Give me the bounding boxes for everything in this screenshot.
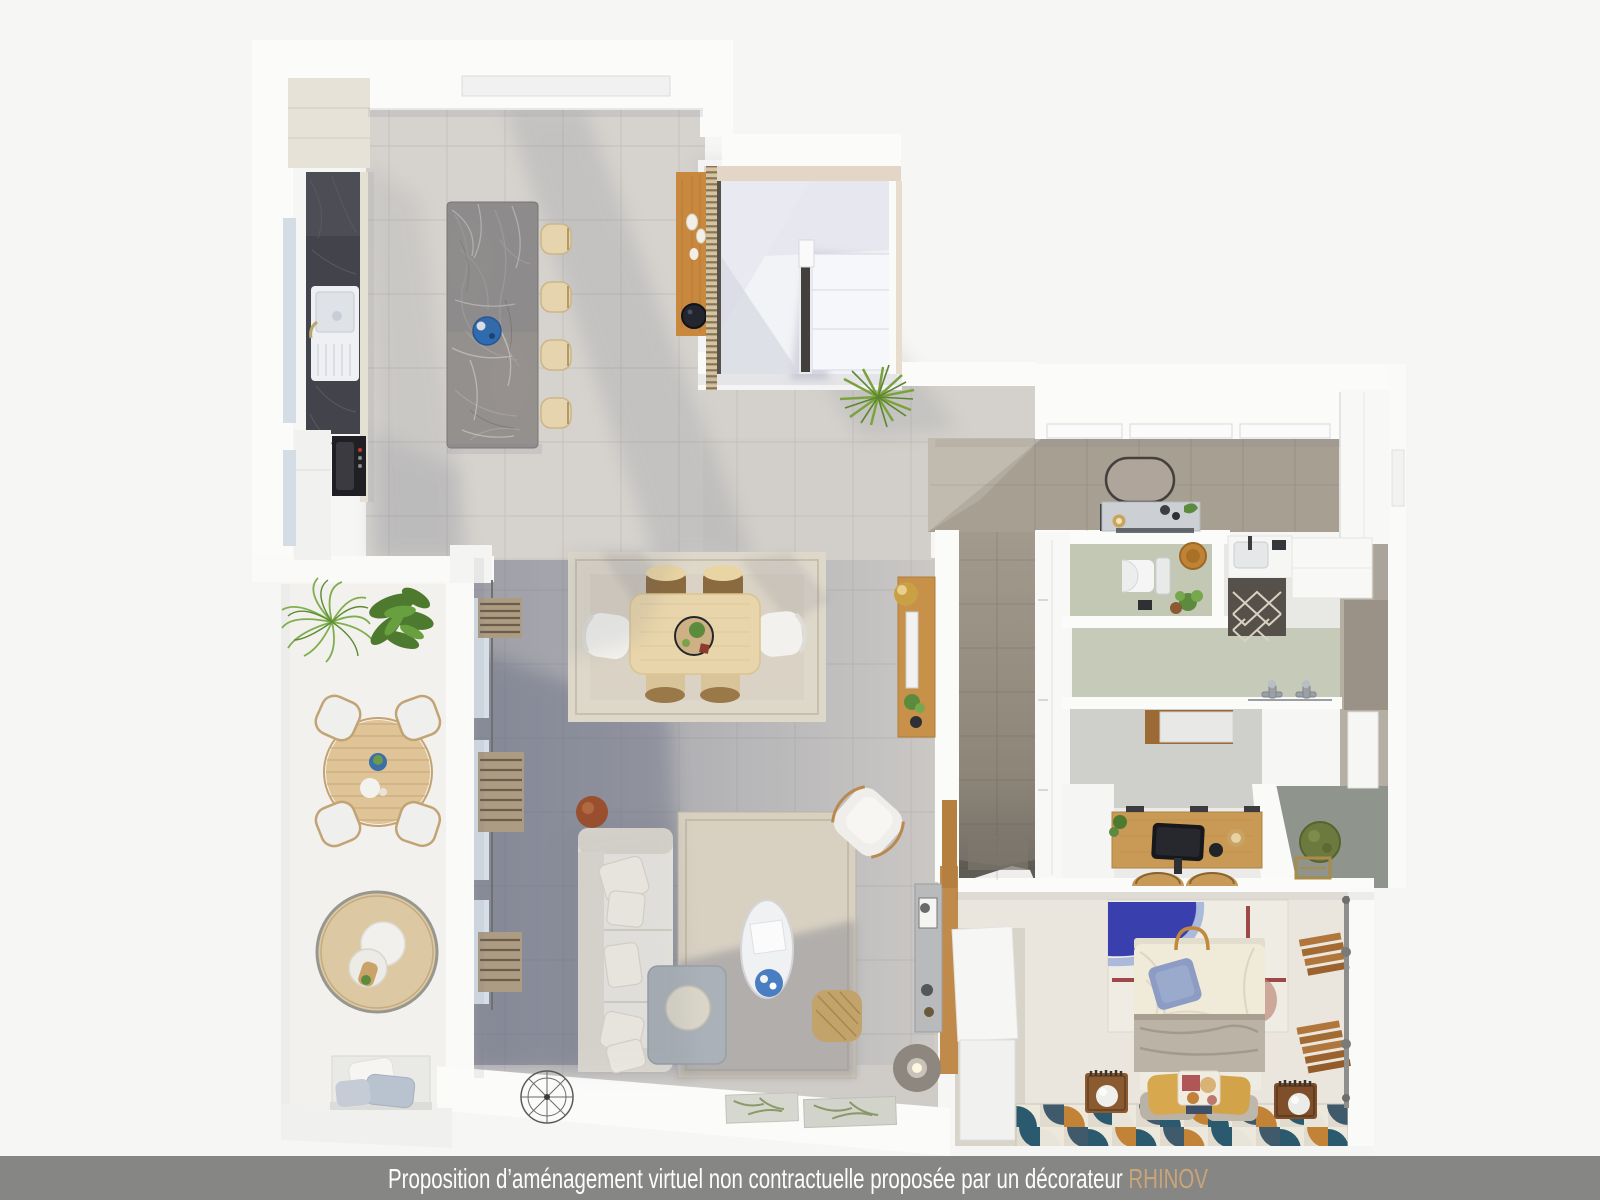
svg-text:Proposition d’aménagement virt: Proposition d’aménagement virtuel non co…	[388, 1163, 1208, 1194]
